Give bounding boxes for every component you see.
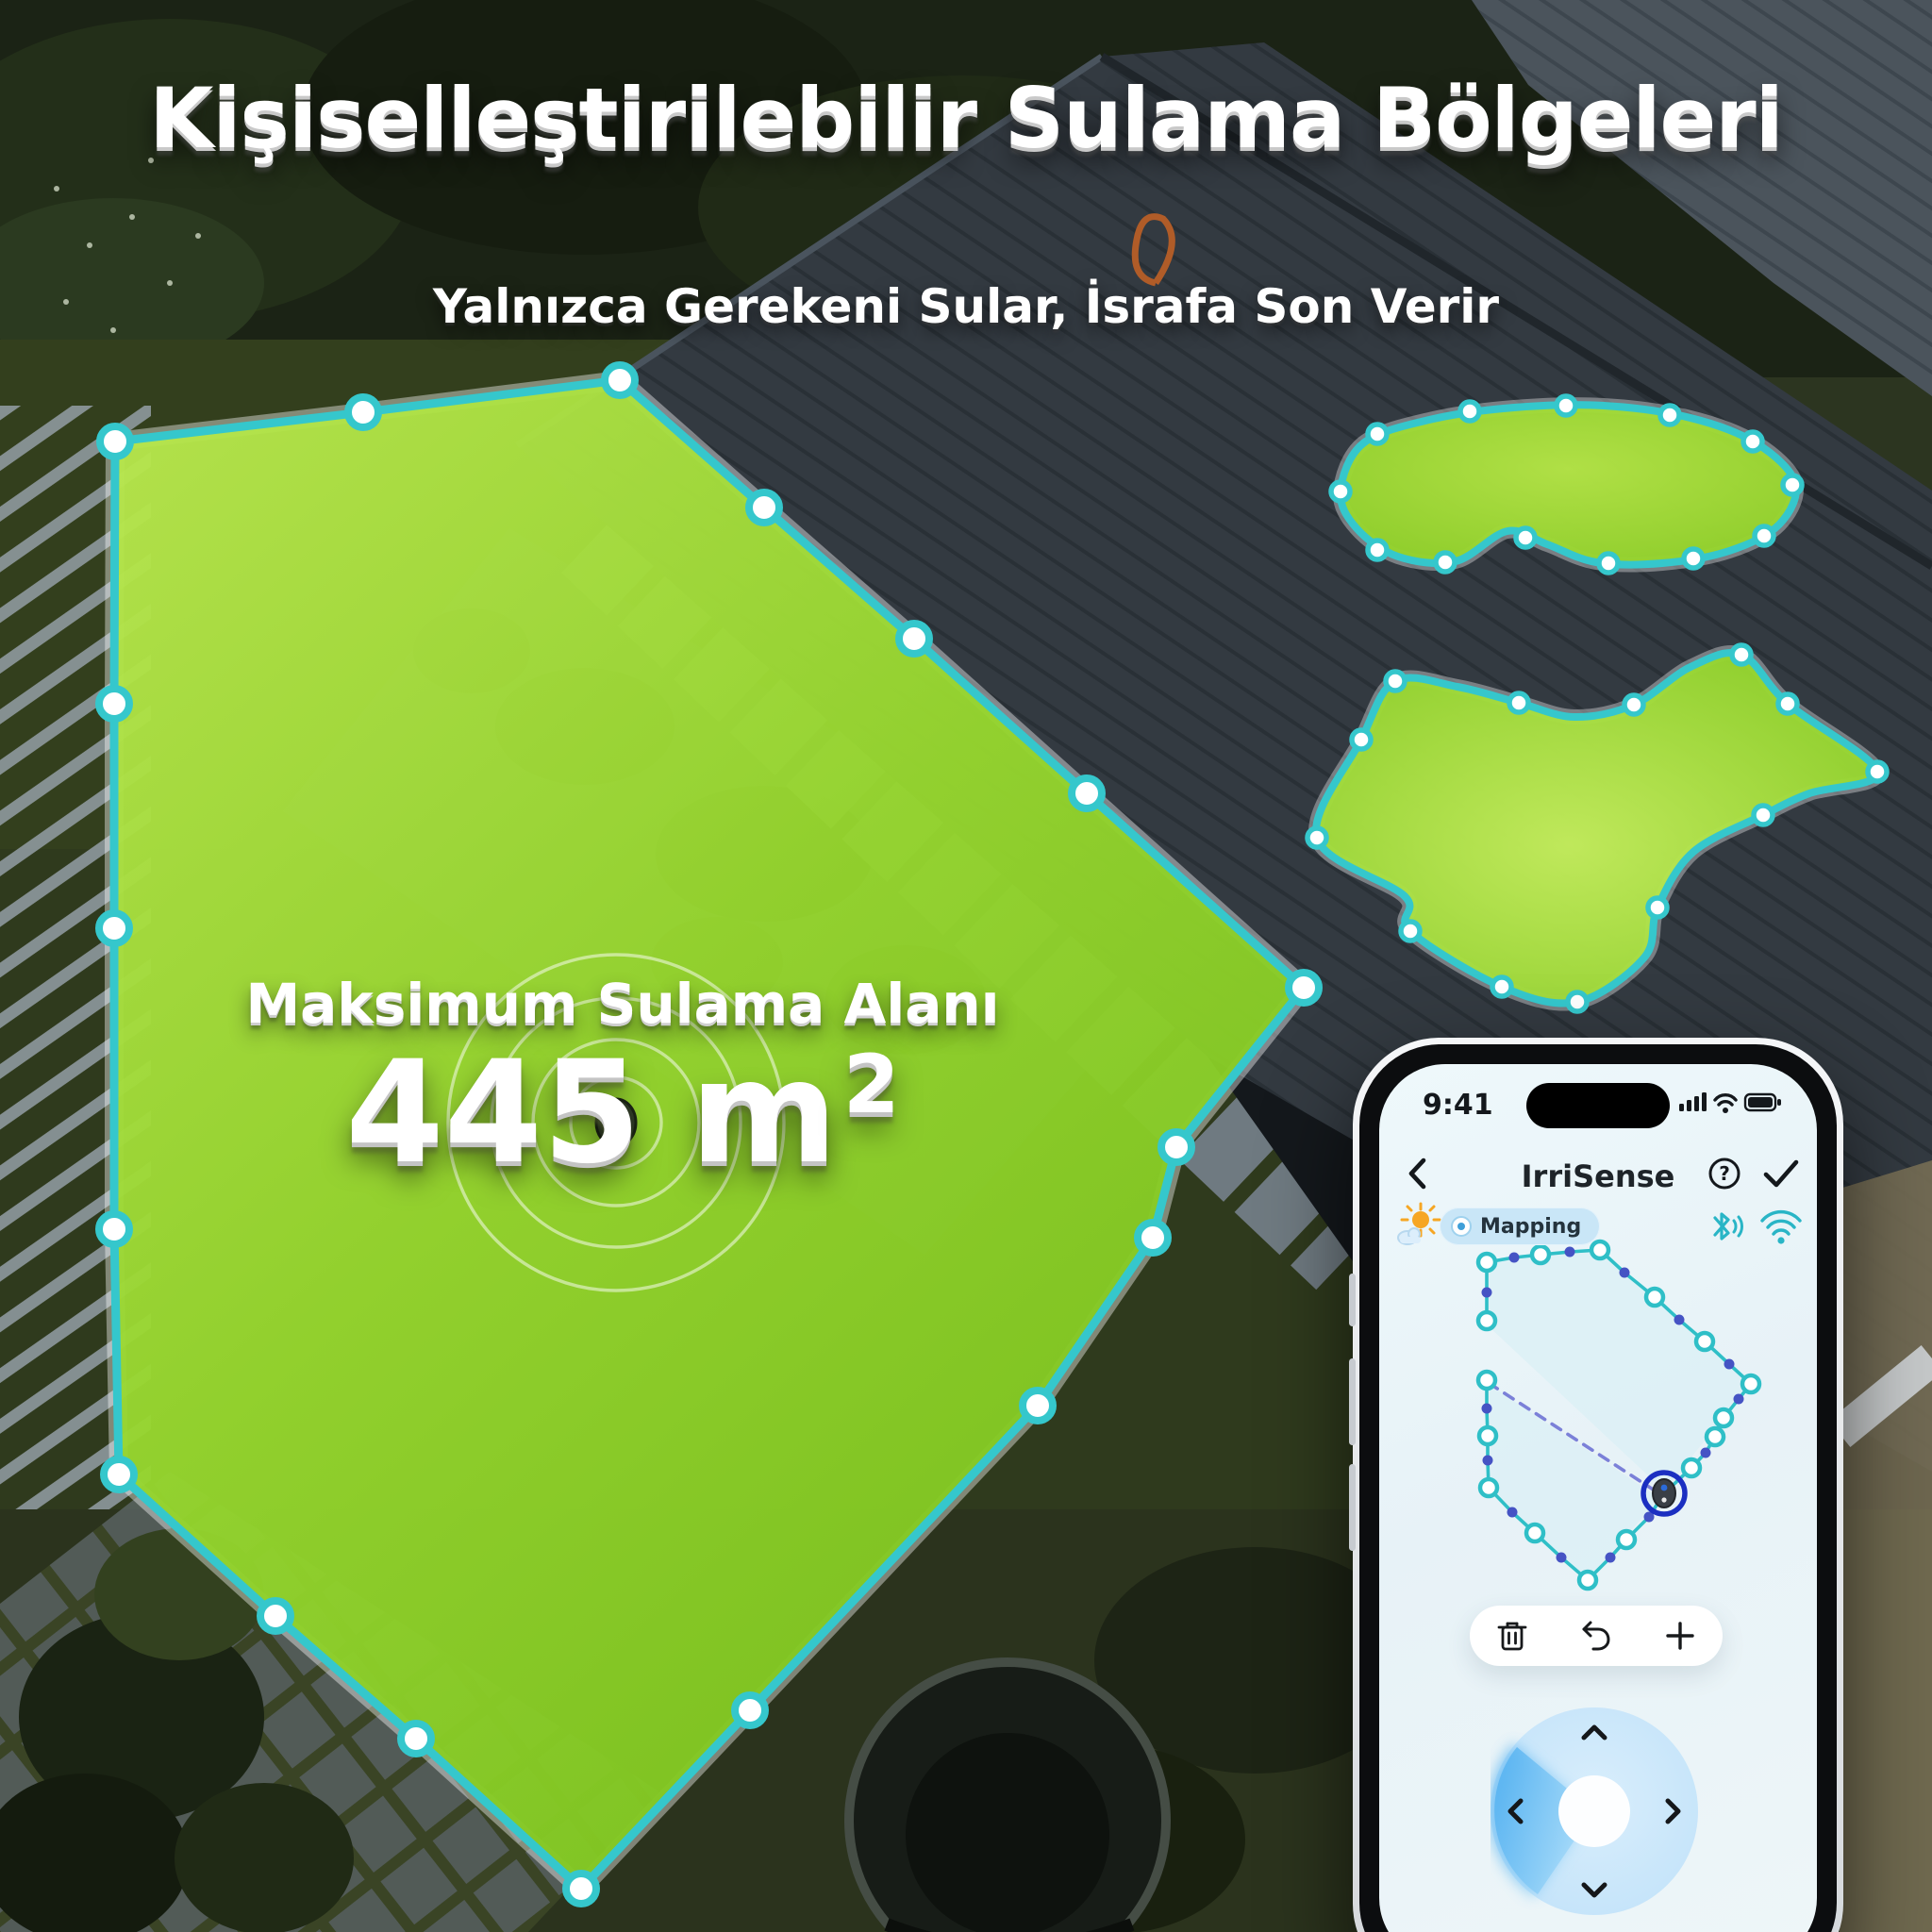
map-vertex bbox=[1683, 1459, 1700, 1476]
nav-bar: IrriSense ? bbox=[1379, 1151, 1817, 1204]
help-button[interactable]: ? bbox=[1706, 1155, 1743, 1196]
svg-text:?: ? bbox=[1719, 1162, 1730, 1185]
map-midpoint bbox=[1674, 1315, 1685, 1325]
mapping-badge[interactable]: Mapping bbox=[1440, 1207, 1600, 1245]
delete-button[interactable] bbox=[1491, 1615, 1533, 1657]
status-time: 9:41 bbox=[1423, 1089, 1493, 1122]
info-row: Mapping bbox=[1379, 1207, 1817, 1253]
map-vertex bbox=[1480, 1479, 1497, 1496]
page-title: Kişiselleştirilebilir Sulama Bölgeleri bbox=[0, 70, 1932, 167]
poster: Kişiselleştirilebilir Sulama Bölgeleri Y… bbox=[0, 0, 1932, 1932]
wifi-status-icon bbox=[1715, 1095, 1736, 1105]
cloud bbox=[1398, 1228, 1421, 1244]
undo-icon bbox=[1579, 1620, 1613, 1652]
map-midpoint bbox=[1509, 1253, 1520, 1263]
plus-icon bbox=[1664, 1620, 1696, 1652]
map-midpoint bbox=[1507, 1507, 1518, 1518]
map-vertex bbox=[1696, 1333, 1713, 1350]
trash-icon bbox=[1496, 1619, 1528, 1653]
phone-mockup: 9:41 bbox=[1353, 1038, 1843, 1932]
map-vertex bbox=[1618, 1531, 1635, 1548]
map-device bbox=[1653, 1479, 1675, 1507]
check-icon bbox=[1766, 1162, 1796, 1185]
volume-down-button[interactable] bbox=[1349, 1464, 1356, 1551]
map-midpoint bbox=[1724, 1359, 1735, 1370]
status-icons bbox=[1679, 1091, 1783, 1119]
add-button[interactable] bbox=[1659, 1615, 1701, 1657]
map-vertex bbox=[1715, 1409, 1732, 1426]
map-vertex bbox=[1478, 1372, 1495, 1389]
map-midpoint bbox=[1482, 1288, 1492, 1298]
question-icon: ? bbox=[1706, 1155, 1743, 1192]
bluetooth-icon bbox=[1707, 1207, 1747, 1249]
map-vertex bbox=[1526, 1524, 1543, 1541]
map-vertex bbox=[1646, 1289, 1663, 1306]
map-midpoint bbox=[1620, 1268, 1630, 1278]
map-vertex bbox=[1742, 1375, 1759, 1392]
max-area-label: Maksimum Sulama Alanı bbox=[236, 972, 1009, 1036]
mute-switch[interactable] bbox=[1349, 1274, 1356, 1326]
confirm-button[interactable] bbox=[1760, 1155, 1802, 1196]
wifi-connected-icon bbox=[1757, 1207, 1806, 1251]
trampoline bbox=[849, 1662, 1166, 1932]
direction-joystick[interactable] bbox=[1491, 1707, 1698, 1915]
map-midpoint bbox=[1482, 1404, 1492, 1414]
phone-bezel: 9:41 bbox=[1359, 1044, 1837, 1932]
page-subtitle: Yalnızca Gerekeni Sular, İsrafa Son Veri… bbox=[0, 279, 1932, 334]
map-toolbar bbox=[1470, 1606, 1723, 1666]
map-midpoint bbox=[1557, 1553, 1567, 1563]
phone-screen: 9:41 bbox=[1379, 1064, 1817, 1932]
signal-icon bbox=[1679, 1092, 1707, 1111]
max-area-value: 445 m2 bbox=[236, 1040, 1009, 1189]
map-vertex bbox=[1579, 1572, 1596, 1589]
map-midpoint bbox=[1701, 1448, 1711, 1458]
map-midpoint bbox=[1483, 1456, 1493, 1466]
map-vertex bbox=[1707, 1428, 1724, 1445]
map-vertex bbox=[1478, 1254, 1495, 1271]
volume-up-button[interactable] bbox=[1349, 1358, 1356, 1445]
undo-button[interactable] bbox=[1575, 1615, 1617, 1657]
mapping-status-dot bbox=[1451, 1216, 1472, 1237]
map-midpoint bbox=[1734, 1394, 1744, 1405]
joystick-knob[interactable] bbox=[1558, 1775, 1630, 1847]
battery-icon bbox=[1745, 1094, 1781, 1110]
weather-icon bbox=[1392, 1202, 1441, 1255]
map-midpoint bbox=[1606, 1553, 1616, 1563]
mapping-badge-label: Mapping bbox=[1480, 1215, 1581, 1239]
zone-2 bbox=[1341, 405, 1796, 564]
app-title: IrriSense bbox=[1379, 1158, 1817, 1194]
map-vertex bbox=[1478, 1312, 1495, 1329]
map-vertex bbox=[1479, 1427, 1496, 1444]
dynamic-island bbox=[1526, 1083, 1670, 1128]
